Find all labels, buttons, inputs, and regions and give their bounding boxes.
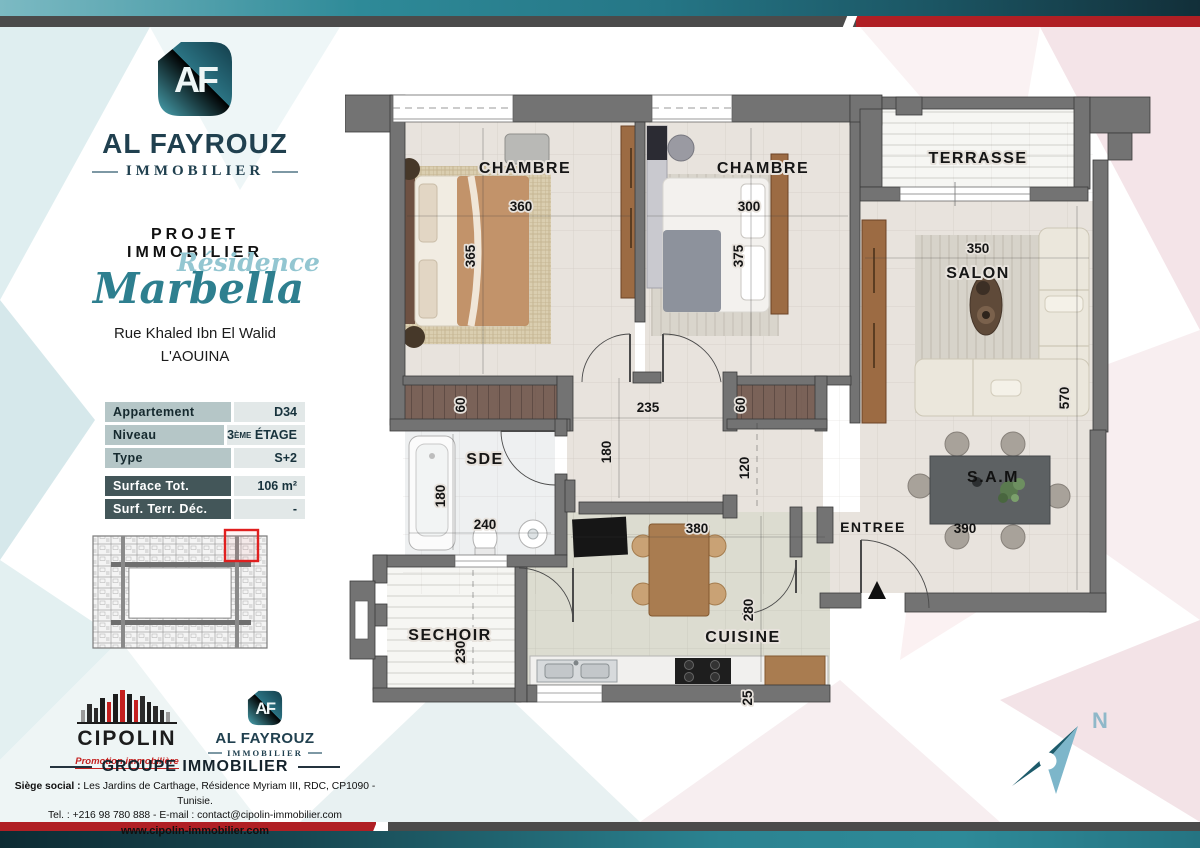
north-compass-icon: N xyxy=(1000,698,1130,818)
office-chair xyxy=(668,135,694,161)
fayrouz-footer-name: AL FAYROUZ xyxy=(205,730,325,747)
room-label-sam: S.A.M xyxy=(967,469,1019,486)
top-teal-bar xyxy=(0,0,1200,16)
dim-ch2-h: 375 xyxy=(731,244,746,267)
dim-counter: 25 xyxy=(740,690,755,706)
svg-text:AF: AF xyxy=(174,59,218,100)
footer-contact: Tel. : +216 98 780 888 - E-mail : contac… xyxy=(5,809,385,824)
dim-ch1-w: 360 xyxy=(510,199,533,214)
cipolin-logo: CIPOLIN Promotion immobilière xyxy=(62,688,192,769)
dim-sechoir-h: 230 xyxy=(453,641,468,664)
dash xyxy=(308,752,322,754)
chair xyxy=(1001,432,1025,456)
af-logo-icon: AF xyxy=(156,40,234,118)
brand-dash-right xyxy=(272,171,298,173)
dim-ch1-h: 365 xyxy=(463,244,478,267)
divider-line xyxy=(298,766,340,768)
room-label-chambre1: CHAMBRE xyxy=(479,160,571,177)
brand-block: AF AL FAYROUZ IMMOBILIER xyxy=(80,40,310,180)
af-logo-small-icon: AF xyxy=(247,690,283,726)
dim-sde-w: 240 xyxy=(474,517,497,532)
group-title: GROUPE IMMOBILIER xyxy=(102,758,289,776)
group-title-row: GROUPE IMMOBILIER xyxy=(35,758,355,776)
building-key-plan xyxy=(85,522,275,662)
address-line1: Rue Khaled Ibn El Walid xyxy=(80,322,310,345)
room-label-terrasse: TERRASSE xyxy=(928,150,1027,167)
room-label-cuisine: CUISINE xyxy=(705,629,780,646)
room-label-sde: SDE xyxy=(466,451,503,468)
footer-contact-block: Siège social : Les Jardins de Carthage, … xyxy=(5,780,385,839)
cushion xyxy=(1045,296,1083,312)
side-table xyxy=(403,326,425,348)
apartment-info-table: Appartement D34 Niveau 3ÈME ÉTAGE Type S… xyxy=(105,402,305,519)
window xyxy=(652,95,732,122)
fayrouz-footer-logo: AF AL FAYROUZ IMMOBILIER xyxy=(205,690,325,758)
cipolin-name: CIPOLIN xyxy=(62,727,192,751)
floor-plan: CHAMBRE CHAMBRE TERRASSE SALON S.A.M ENT… xyxy=(345,78,1160,733)
headboard-panel xyxy=(771,154,788,314)
top-red-band xyxy=(856,16,1200,27)
brand-name: AL FAYROUZ xyxy=(80,128,310,160)
dim-sde-h: 180 xyxy=(433,485,448,508)
cushion xyxy=(991,380,1021,396)
fayrouz-footer-subtitle: IMMOBILIER xyxy=(227,748,303,758)
dash xyxy=(208,752,222,754)
table-row: Niveau 3ÈME ÉTAGE xyxy=(105,425,305,445)
dim-salon-w: 350 xyxy=(967,241,990,256)
footer-website: www.cipolin-immobilier.com xyxy=(5,824,385,840)
chair xyxy=(1001,525,1025,549)
dim-salon-h: 570 xyxy=(1057,387,1072,410)
divider-line xyxy=(50,766,92,768)
project-address: Rue Khaled Ibn El Walid L'AOUINA xyxy=(80,322,310,369)
room-label-salon: SALON xyxy=(946,265,1010,282)
window xyxy=(393,95,513,122)
chair xyxy=(908,474,932,498)
residence-name: Marbella xyxy=(93,264,304,313)
kitchen-table xyxy=(649,524,709,616)
table-row: Type S+2 xyxy=(105,448,305,468)
blanket xyxy=(663,230,721,312)
residence-title: Résidence Marbella xyxy=(85,246,305,324)
dim-hall2-h: 120 xyxy=(737,457,752,480)
stove xyxy=(675,658,731,684)
dim-hall-w: 235 xyxy=(637,400,660,415)
dim-ch2-w: 300 xyxy=(738,199,761,214)
dining-table xyxy=(930,456,1050,524)
dim-hall-h: 180 xyxy=(599,441,614,464)
svg-text:AF: AF xyxy=(255,699,276,718)
footer-address: Siège social : Les Jardins de Carthage, … xyxy=(5,780,385,809)
table-row: Surf. Terr. Déc. - xyxy=(105,499,305,519)
dim-sam-w: 390 xyxy=(954,521,977,536)
address-line2: L'AOUINA xyxy=(80,345,310,368)
room-label-chambre2: CHAMBRE xyxy=(717,160,809,177)
brand-dash-left xyxy=(92,171,118,173)
window xyxy=(537,685,602,702)
bottom-gray-band xyxy=(388,822,1200,831)
room-label-sechoir: SECHOIR xyxy=(408,627,491,644)
room-label-entree: ENTREE xyxy=(840,519,906,535)
bed-headboard xyxy=(405,178,415,324)
dim-loggia2: 60 xyxy=(733,397,748,412)
poster-root: { "brand": { "monogram": "AF", "name": "… xyxy=(0,0,1200,848)
chair xyxy=(945,432,969,456)
brand-subtitle: IMMOBILIER xyxy=(126,163,264,180)
door-gap xyxy=(455,555,507,567)
dim-cuisine-w: 380 xyxy=(686,521,709,536)
dim-loggia1: 60 xyxy=(453,397,468,412)
dim-cuisine-h: 280 xyxy=(741,599,756,622)
cipolin-skyline-icon xyxy=(75,688,179,724)
compass-n-label: N xyxy=(1092,708,1108,733)
table-row: Surface Tot. 106 m² xyxy=(105,476,305,496)
apartment-location-highlight xyxy=(225,530,258,561)
table-row: Appartement D34 xyxy=(105,402,305,422)
